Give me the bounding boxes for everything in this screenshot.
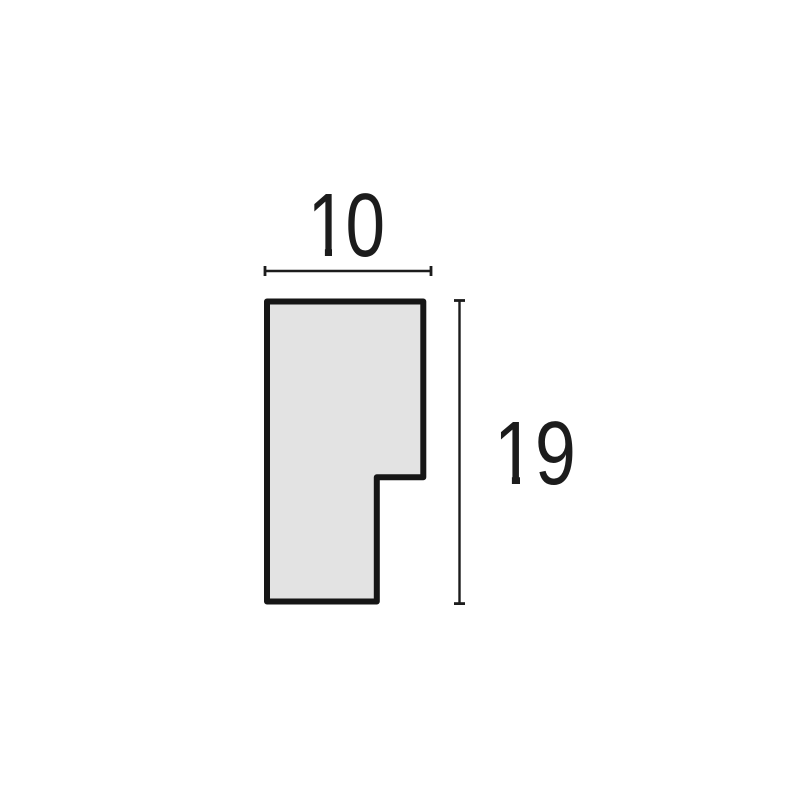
svg-text:10: 10	[308, 176, 384, 276]
svg-text:19: 19	[494, 404, 576, 504]
